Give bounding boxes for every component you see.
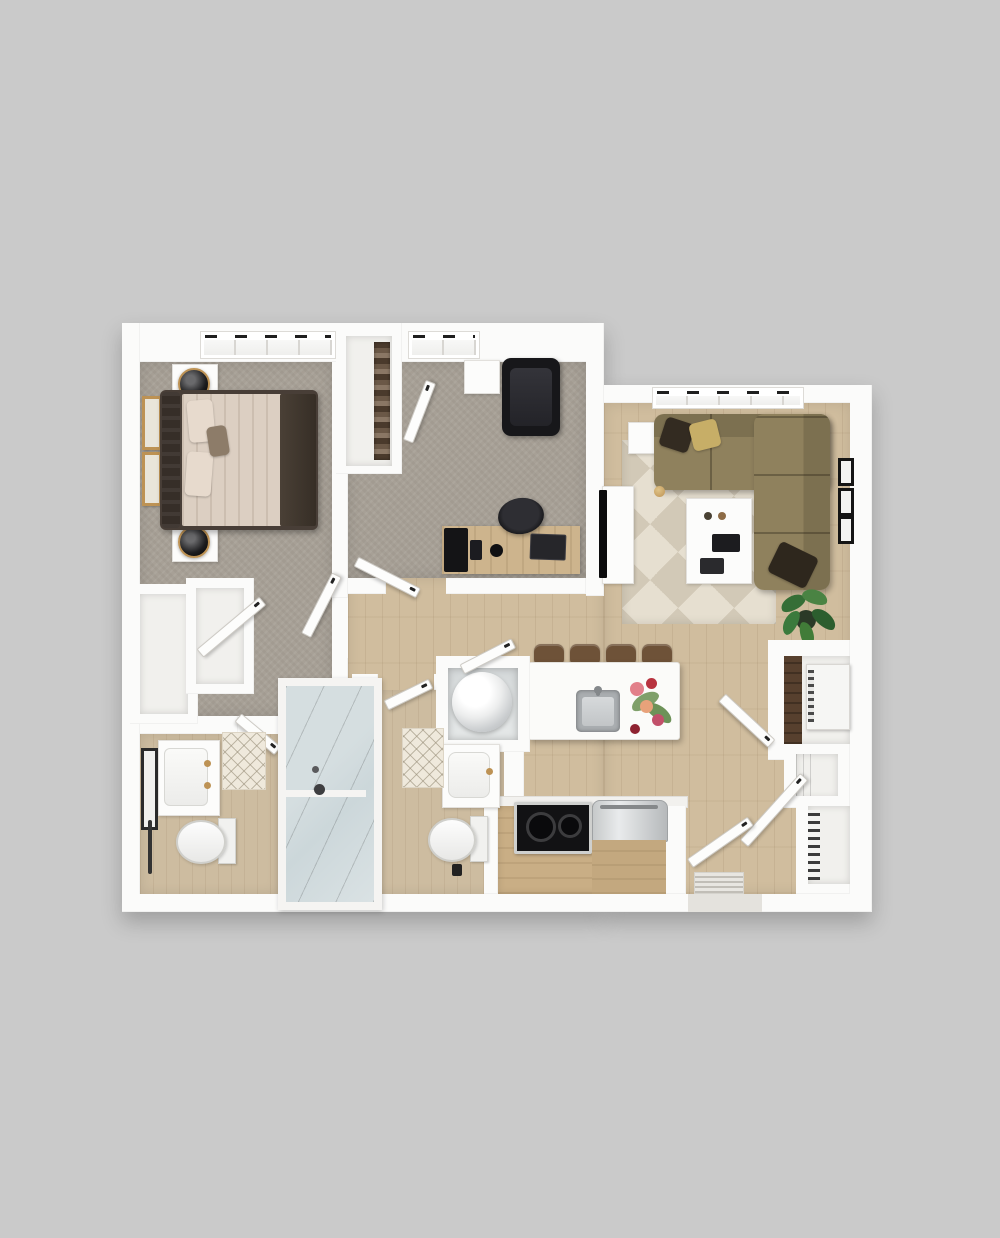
bed-headboard	[162, 392, 180, 528]
bedroom-window	[200, 331, 336, 359]
sofa-horizontal	[654, 414, 830, 490]
bathroom2-door	[384, 679, 434, 711]
window-tick-marks	[205, 335, 331, 338]
cooktop	[514, 802, 592, 854]
laundry-group	[0, 0, 1000, 1238]
bath1-sink	[164, 748, 208, 806]
shower-valve	[312, 766, 319, 773]
window-glass	[656, 396, 800, 405]
wall-bathroom2-right	[504, 674, 524, 894]
laundry-door	[460, 638, 517, 674]
office-group	[0, 0, 1000, 1238]
shelf-niche-box	[784, 744, 850, 808]
counter-cabinets	[498, 806, 666, 894]
bed-pillow-2	[184, 451, 213, 497]
closet-a-box	[130, 584, 198, 724]
entry-threshold	[688, 894, 762, 912]
outer-wall-top-right	[604, 385, 872, 403]
laptop	[530, 533, 567, 560]
bath2-faucet	[486, 768, 493, 775]
flower-dark-red	[630, 724, 640, 734]
plant-leaf	[800, 586, 829, 607]
bathroom1-door	[234, 713, 281, 755]
counter-end-right	[666, 806, 686, 894]
bathroom1-floor	[140, 734, 278, 894]
coffee-table-decor-2	[718, 512, 726, 520]
refrigerator	[592, 800, 668, 842]
shower-enclosure	[278, 678, 382, 910]
wall-bathroom1-top	[140, 716, 238, 734]
outer-wall-right	[850, 385, 872, 912]
linen-closet-door	[740, 773, 808, 847]
wall-office-bottom-right	[446, 578, 586, 594]
island-faucet	[594, 686, 602, 694]
table-lamp-top	[178, 368, 210, 400]
closet-a-interior	[140, 594, 188, 714]
wall-office-living	[586, 323, 604, 596]
lounge-chair	[502, 358, 560, 436]
bath1-toilet-tank	[218, 818, 236, 864]
entry-door	[687, 817, 754, 868]
bedroom-group	[0, 0, 1000, 1238]
island-sink-basin	[582, 697, 614, 726]
counter-edge	[484, 796, 688, 808]
door-handle	[254, 601, 261, 607]
plan-left-block	[122, 323, 604, 912]
office-door	[354, 557, 421, 599]
window-tick-marks	[657, 391, 799, 394]
kitchen-island	[528, 662, 680, 740]
coffee-table	[686, 498, 752, 584]
wardrobe-door	[403, 380, 436, 444]
bathroom1-group	[0, 0, 1000, 1238]
door-handle	[270, 743, 277, 749]
desk	[442, 526, 580, 574]
living-wall-frame-1	[838, 458, 854, 486]
door-handle	[409, 587, 416, 592]
utility-closet-box	[768, 640, 850, 760]
closet-b-door	[196, 597, 266, 658]
remote-2	[700, 558, 724, 574]
kitchen-group	[0, 0, 1000, 1238]
office-window	[408, 331, 480, 359]
bed-frame	[160, 390, 318, 530]
table-lamp-bottom	[178, 526, 210, 558]
wardrobe-shelving	[374, 342, 390, 460]
coffee-table-decor-1	[704, 512, 712, 520]
flower-greenery	[643, 699, 675, 727]
laundry-interior	[448, 668, 518, 740]
cooktop-burner-large	[526, 812, 556, 842]
bath2-vanity	[442, 744, 500, 808]
utility-closet-door	[718, 693, 775, 747]
wardrobe-group	[0, 0, 1000, 1238]
island-sink	[576, 690, 620, 732]
refrigerator-cabinet	[592, 840, 666, 894]
window-glass	[204, 340, 332, 355]
plant-leaf	[797, 620, 816, 648]
window-tick-marks	[413, 335, 475, 338]
wall-bedroom-right-lower	[332, 658, 348, 720]
plant-leaf	[809, 605, 839, 634]
floorplan	[0, 0, 1000, 1238]
utility-appliance-vents	[808, 670, 814, 722]
sofa-side-table	[628, 422, 666, 454]
living-wall-frame-3	[838, 516, 854, 544]
refrigerator-handle	[600, 805, 658, 809]
bath1-towel-bar	[148, 820, 152, 874]
bath2-toilet-tank	[470, 816, 488, 862]
plant-leaf	[779, 608, 803, 637]
door-handle	[504, 643, 511, 648]
living-room-group	[0, 0, 1000, 1238]
desk-pedestal	[444, 528, 468, 572]
office-floor	[348, 362, 586, 578]
linen-closet-box	[796, 796, 850, 894]
laundry-box	[436, 656, 530, 752]
bedroom-door	[301, 572, 342, 638]
sofa-pillow-dark-1	[658, 416, 696, 454]
bed-pillow-1	[186, 399, 216, 443]
flower-peach	[640, 700, 653, 713]
bath1-mirror	[141, 748, 158, 830]
washer	[452, 672, 512, 732]
bed-duvet	[182, 394, 282, 526]
shelf-niche-shelves	[796, 754, 816, 798]
flower-red	[646, 678, 657, 689]
window-glass	[412, 340, 476, 355]
living-kitchen-floor	[604, 403, 850, 894]
linen-towels	[808, 810, 820, 880]
wall-bedroom-right-upper	[332, 362, 348, 598]
door-handle	[425, 385, 430, 392]
outer-wall-left	[122, 323, 140, 912]
wall-office-bottom-left	[348, 578, 386, 594]
door-handle	[330, 577, 335, 584]
gold-bowl	[654, 486, 665, 497]
storage-group	[0, 0, 1000, 1238]
bath2-sink	[448, 752, 490, 798]
bedroom-wall-art-2	[142, 452, 162, 506]
bath1-vanity	[158, 740, 220, 816]
remote-1	[712, 534, 740, 552]
bath1-toilet-bowl	[176, 820, 226, 864]
door-handle	[764, 735, 770, 741]
flower-rose	[652, 714, 664, 726]
shower-glass-divider	[278, 790, 366, 797]
lounge-chair-cushion	[510, 368, 552, 426]
sofa-pillow-dark-2	[767, 541, 820, 590]
plant-leaf	[778, 591, 808, 616]
bar-stool-1	[534, 644, 564, 666]
bedroom-wall-art-1	[142, 396, 162, 450]
door-handle	[796, 778, 802, 784]
nightstand-top	[172, 364, 218, 404]
bathroom2-floor	[366, 690, 504, 894]
wall-bathroom2-top-left	[352, 674, 378, 690]
flower-pink	[630, 682, 644, 696]
shower-head	[314, 784, 325, 795]
door-handle	[421, 683, 428, 688]
tv-console	[602, 486, 634, 584]
bath2-waste-bin	[452, 864, 462, 876]
entry-group	[0, 0, 1000, 1238]
shower-group	[0, 0, 1000, 1238]
bed-accent-pillow	[206, 425, 230, 458]
bath1-mat	[222, 732, 266, 790]
flower-greenery	[629, 687, 662, 714]
outer-wall-bottom	[122, 894, 872, 912]
wall-bathroom2-top-right	[434, 674, 526, 690]
island-flowers	[0, 0, 1000, 1238]
closet-b-interior	[196, 588, 244, 684]
counter-end-left	[484, 806, 498, 894]
desk-lamp	[490, 544, 503, 557]
utility-appliance	[806, 664, 850, 730]
living-wall-frame-2	[838, 488, 854, 516]
potted-plant	[0, 0, 1000, 1238]
shelf-niche-interior	[796, 754, 838, 798]
linen-closet-interior	[808, 806, 850, 884]
door-handle	[741, 821, 748, 827]
bed-foot-blanket	[280, 394, 316, 526]
sofa-pillow-gold	[688, 418, 722, 452]
closet-b-box	[186, 578, 254, 694]
living-window	[652, 387, 804, 409]
area-rug	[622, 440, 776, 624]
bath1-faucet-2	[204, 782, 211, 789]
wardrobe-box	[336, 323, 402, 474]
bath2-toilet-bowl	[428, 818, 476, 862]
plant-pot	[796, 610, 816, 630]
utility-closet-interior	[784, 656, 850, 744]
desk-accessory	[470, 540, 482, 560]
hallway-kitchen-floor	[348, 578, 604, 894]
bar-stool-4	[642, 644, 672, 666]
plan-right-block	[604, 385, 872, 912]
sofa-vertical	[754, 414, 830, 590]
desk-chair	[496, 495, 547, 537]
nightstand-bottom	[172, 522, 218, 562]
bath1-faucet-1	[204, 760, 211, 767]
utility-closet-back-panel	[784, 656, 802, 744]
floorplan-scene	[0, 0, 1000, 1238]
bar-stool-2	[570, 644, 600, 666]
bath2-mat	[402, 728, 444, 788]
bedroom-floor	[140, 362, 332, 716]
doormat	[694, 872, 744, 894]
tv	[599, 490, 607, 578]
cooktop-burner-small	[558, 814, 582, 838]
bathroom2-group	[0, 0, 1000, 1238]
bar-stool-3	[606, 644, 636, 666]
wardrobe-interior	[346, 336, 392, 466]
outer-wall-top-left	[122, 323, 604, 362]
bedroom-closets-group	[0, 0, 1000, 1238]
office-side-table	[464, 360, 500, 394]
